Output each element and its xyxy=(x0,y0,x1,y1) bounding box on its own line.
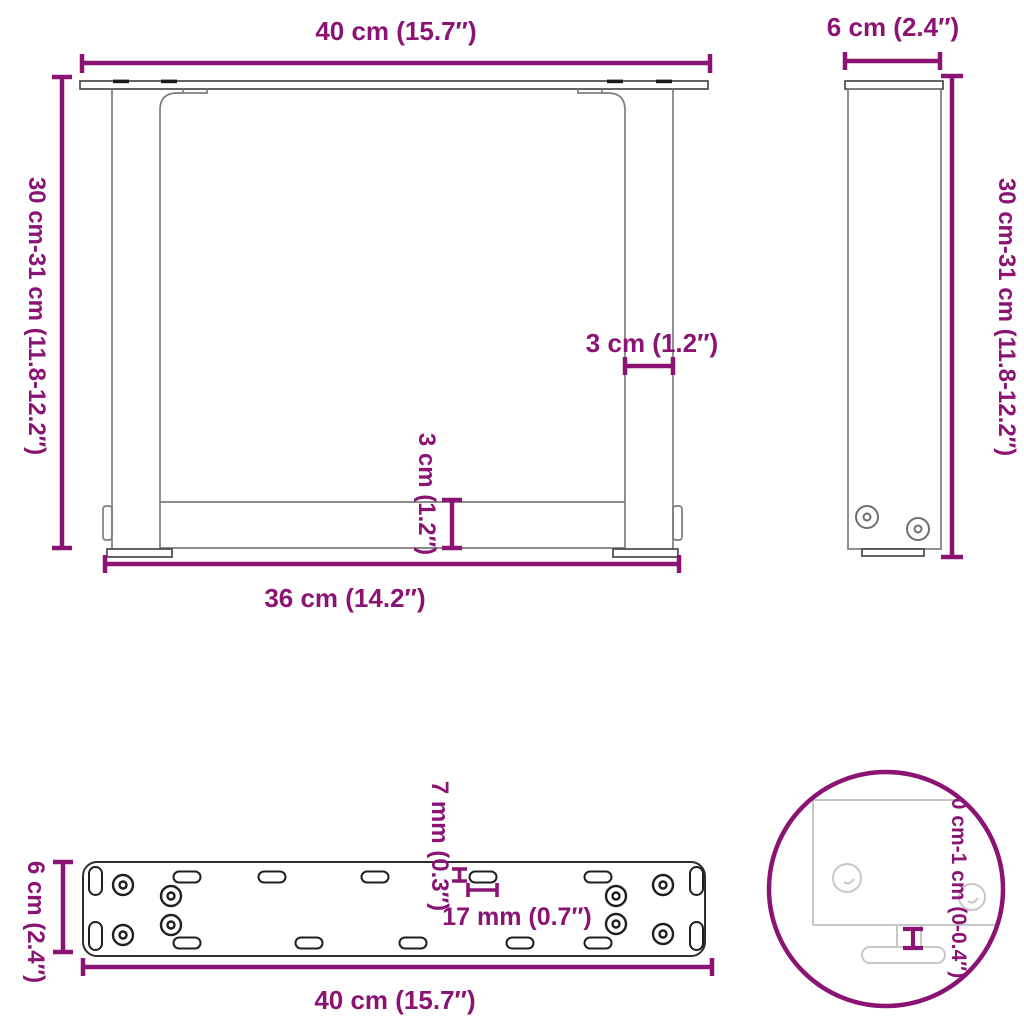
diagram-canvas: 40 cm (15.7″) 30 cm-31 cm (11.8-12.2″) 3… xyxy=(0,0,1024,1024)
slot-mark xyxy=(161,80,177,84)
slot-hole xyxy=(585,872,612,883)
front-right-leg-inner-edge xyxy=(578,89,625,549)
screw-hole xyxy=(856,506,878,528)
slot-hole xyxy=(89,922,102,950)
slot-hole xyxy=(362,872,389,883)
front-left-leg-inner-edge xyxy=(160,89,207,549)
dim-label-front-width-bottom: 36 cm (14.2″) xyxy=(264,583,425,613)
front-left-clip xyxy=(103,506,112,540)
side-foot xyxy=(862,549,924,556)
side-screws xyxy=(856,506,929,540)
slot-hole xyxy=(174,938,201,949)
dim-label-front-bar-height: 3 cm (1.2″) xyxy=(413,433,440,555)
slot-hole xyxy=(89,867,102,895)
slot-mark xyxy=(113,80,129,84)
slot-mark xyxy=(656,80,672,84)
dim-label-side-height-right: 30 cm-31 cm (11.8-12.2″) xyxy=(993,178,1020,456)
dim-label-front-height-left: 30 cm-31 cm (11.8-12.2″) xyxy=(23,177,50,455)
screw-center xyxy=(915,526,922,533)
slot-hole xyxy=(690,922,703,950)
plate-depth-dimension-line xyxy=(53,862,73,952)
plate-width-dimension-line xyxy=(83,958,712,976)
front-right-clip xyxy=(673,506,682,540)
plate-top-view: 6 cm (2.4″) 7 mm (0.3″) 17 mm (0.7″) 40 … xyxy=(22,781,712,1015)
front-height-dimension-line xyxy=(52,77,72,548)
dim-label-plate-slot-height: 7 mm (0.3″) xyxy=(426,781,453,911)
side-leg-body xyxy=(848,89,941,549)
detail-content: 0 cm-1 cm (0-0.4″) xyxy=(813,798,1002,978)
detail-circle-view: 0 cm-1 cm (0-0.4″) xyxy=(769,772,1003,1006)
slot-hole xyxy=(174,872,201,883)
dim-label-plate-depth-left: 6 cm (2.4″) xyxy=(22,861,49,983)
side-depth-dimension-line xyxy=(845,52,940,70)
front-cross-bar xyxy=(160,502,625,548)
screw-center xyxy=(864,514,871,521)
slot-hole xyxy=(690,867,703,895)
dim-label-detail-adjustable-height: 0 cm-1 cm (0-0.4″) xyxy=(947,798,970,978)
detail-leg-outline xyxy=(813,800,1002,925)
dim-label-front-width-top: 40 cm (15.7″) xyxy=(315,16,476,46)
side-height-dimension-line xyxy=(941,76,963,557)
dimension-diagram: 40 cm (15.7″) 30 cm-31 cm (11.8-12.2″) 3… xyxy=(0,0,1024,1024)
slot-mark xyxy=(607,80,623,84)
front-view: 40 cm (15.7″) 30 cm-31 cm (11.8-12.2″) 3… xyxy=(23,16,718,613)
slot-hole xyxy=(470,872,497,883)
slot-hole xyxy=(507,938,534,949)
screw-hole xyxy=(907,518,929,540)
dim-label-side-depth-top: 6 cm (2.4″) xyxy=(827,12,959,42)
side-top-plate xyxy=(845,81,943,89)
front-bottom-width-dimension-line xyxy=(105,555,679,573)
front-width-dimension-line xyxy=(82,54,710,73)
detail-screw-hole xyxy=(833,864,861,892)
front-right-foot xyxy=(613,549,678,557)
front-bar-height-dimension-line xyxy=(442,500,462,548)
slot-hole xyxy=(585,938,612,949)
slot-hole xyxy=(259,872,286,883)
detail-screw-mark xyxy=(844,879,854,883)
front-leg-width-dimension-line xyxy=(625,357,673,375)
slot-hole xyxy=(400,938,427,949)
dim-label-plate-width-bottom: 40 cm (15.7″) xyxy=(314,985,475,1015)
dim-label-front-leg-width: 3 cm (1.2″) xyxy=(586,328,718,358)
dim-label-plate-slot-width: 17 mm (0.7″) xyxy=(442,903,592,931)
slot-hole xyxy=(296,938,323,949)
front-left-foot xyxy=(107,549,172,557)
side-view: 6 cm (2.4″) 30 cm-31 cm (11.8-12.2″) xyxy=(827,12,1020,557)
